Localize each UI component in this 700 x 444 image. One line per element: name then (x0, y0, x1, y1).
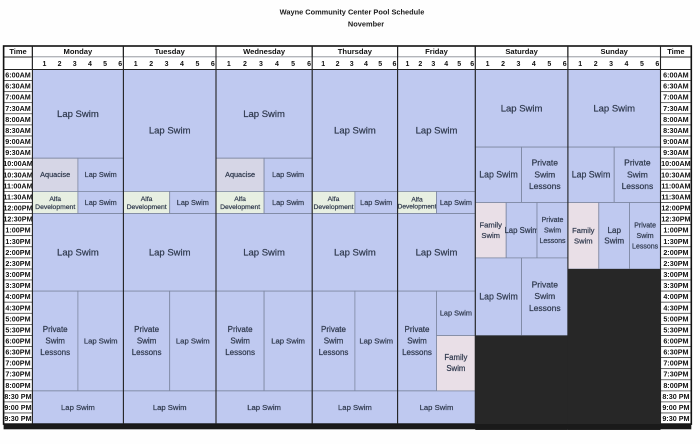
svg-text:9:30 PM: 9:30 PM (662, 414, 689, 423)
svg-text:Thursday: Thursday (338, 47, 373, 56)
svg-text:1: 1 (42, 61, 46, 68)
svg-text:5: 5 (291, 61, 295, 68)
svg-text:4:00PM: 4:00PM (663, 292, 688, 301)
svg-text:3:00PM: 3:00PM (5, 270, 30, 279)
svg-text:Wayne Community Center Pool Sc: Wayne Community Center Pool Schedule (280, 7, 425, 16)
svg-text:2:30PM: 2:30PM (663, 259, 688, 268)
svg-text:Lap Swim: Lap Swim (572, 170, 611, 180)
svg-text:1: 1 (227, 61, 231, 68)
svg-text:2:00PM: 2:00PM (663, 248, 688, 257)
svg-text:Lap Swim: Lap Swim (504, 226, 538, 235)
svg-text:6: 6 (118, 61, 122, 68)
svg-text:9:30AM: 9:30AM (663, 148, 689, 157)
svg-text:November: November (348, 19, 384, 28)
svg-text:Friday: Friday (425, 47, 449, 56)
svg-text:Lap Swim: Lap Swim (177, 198, 209, 207)
svg-text:3: 3 (259, 61, 263, 68)
svg-text:11:00AM: 11:00AM (3, 181, 32, 190)
svg-text:4:30PM: 4:30PM (5, 303, 30, 312)
svg-text:1: 1 (578, 61, 582, 68)
svg-text:4: 4 (180, 61, 184, 68)
svg-text:Lap Swim: Lap Swim (593, 103, 635, 114)
svg-text:4: 4 (88, 61, 92, 68)
svg-text:Lap Swim: Lap Swim (334, 125, 376, 136)
svg-text:Lap Swim: Lap Swim (360, 198, 392, 207)
svg-text:5: 5 (103, 61, 107, 68)
svg-text:12:30PM: 12:30PM (3, 215, 32, 224)
svg-text:Monday: Monday (64, 47, 93, 56)
svg-text:2: 2 (149, 61, 153, 68)
svg-text:6:00PM: 6:00PM (5, 337, 30, 346)
svg-text:7:00PM: 7:00PM (663, 359, 688, 368)
svg-text:8:00AM: 8:00AM (5, 115, 31, 124)
svg-text:11:30AM: 11:30AM (661, 192, 690, 201)
svg-text:6:00AM: 6:00AM (5, 71, 31, 80)
svg-text:5:00PM: 5:00PM (663, 314, 688, 323)
svg-text:6: 6 (307, 61, 311, 68)
svg-text:Lap Swim: Lap Swim (85, 198, 117, 207)
svg-text:Lap Swim: Lap Swim (57, 247, 99, 258)
svg-text:5: 5 (195, 61, 199, 68)
svg-text:8:00AM: 8:00AM (663, 115, 689, 124)
svg-text:8:00PM: 8:00PM (663, 381, 688, 390)
svg-text:Lap Swim: Lap Swim (85, 170, 117, 179)
svg-text:2: 2 (243, 61, 247, 68)
svg-text:3: 3 (516, 61, 520, 68)
svg-text:1: 1 (405, 61, 409, 68)
svg-text:8:30AM: 8:30AM (663, 126, 689, 135)
svg-text:2: 2 (418, 61, 422, 68)
svg-text:4: 4 (444, 61, 448, 68)
svg-text:Lap Swim: Lap Swim (271, 337, 305, 346)
svg-text:6:30PM: 6:30PM (5, 348, 30, 357)
svg-text:4: 4 (624, 61, 628, 68)
svg-text:5: 5 (378, 61, 382, 68)
svg-text:1: 1 (134, 61, 138, 68)
svg-text:1:30PM: 1:30PM (5, 237, 30, 246)
svg-text:4:30PM: 4:30PM (663, 303, 688, 312)
svg-text:12:00PM: 12:00PM (661, 204, 690, 213)
svg-text:9:00AM: 9:00AM (663, 137, 689, 146)
svg-text:3:00PM: 3:00PM (663, 270, 688, 279)
svg-text:Time: Time (9, 47, 26, 56)
svg-text:4: 4 (532, 61, 536, 68)
svg-text:FamilySwim: FamilySwim (572, 226, 595, 246)
svg-text:9:00 PM: 9:00 PM (4, 403, 31, 412)
svg-text:4: 4 (364, 61, 368, 68)
svg-text:6:00AM: 6:00AM (663, 71, 689, 80)
svg-text:12:30PM: 12:30PM (661, 215, 690, 224)
svg-text:9:30 PM: 9:30 PM (4, 414, 31, 423)
svg-text:1: 1 (486, 61, 490, 68)
svg-text:10:00AM: 10:00AM (3, 159, 33, 168)
svg-text:7:00AM: 7:00AM (663, 93, 689, 102)
svg-text:9:00 PM: 9:00 PM (662, 403, 689, 412)
svg-text:6:00PM: 6:00PM (663, 337, 688, 346)
svg-text:7:30AM: 7:30AM (5, 104, 31, 113)
svg-text:Lap Swim: Lap Swim (440, 198, 472, 207)
svg-text:4: 4 (275, 61, 279, 68)
svg-text:1: 1 (321, 61, 325, 68)
svg-text:9:30AM: 9:30AM (5, 148, 31, 157)
svg-text:2:00PM: 2:00PM (5, 248, 30, 257)
svg-text:2: 2 (58, 61, 62, 68)
svg-text:2: 2 (336, 61, 340, 68)
svg-text:Lap Swim: Lap Swim (334, 247, 376, 258)
svg-text:Lap Swim: Lap Swim (359, 337, 393, 346)
svg-text:6:30AM: 6:30AM (663, 82, 689, 91)
svg-text:FamilySwim: FamilySwim (480, 220, 503, 240)
svg-text:Lap Swim: Lap Swim (243, 109, 285, 120)
svg-text:8:30AM: 8:30AM (5, 126, 31, 135)
svg-text:8:30 PM: 8:30 PM (662, 392, 689, 401)
svg-text:Lap Swim: Lap Swim (420, 403, 454, 412)
svg-text:3: 3 (165, 61, 169, 68)
svg-text:3: 3 (609, 61, 613, 68)
svg-text:11:00AM: 11:00AM (661, 181, 690, 190)
svg-text:7:30AM: 7:30AM (663, 104, 689, 113)
svg-text:6:30PM: 6:30PM (663, 348, 688, 357)
svg-text:6: 6 (563, 61, 567, 68)
svg-text:10:00AM: 10:00AM (661, 159, 691, 168)
svg-text:7:30PM: 7:30PM (5, 370, 30, 379)
svg-text:11:30AM: 11:30AM (3, 192, 32, 201)
svg-text:Lap Swim: Lap Swim (176, 337, 210, 346)
svg-text:1:00PM: 1:00PM (663, 226, 688, 235)
svg-text:Lap Swim: Lap Swim (416, 125, 458, 136)
svg-text:3: 3 (431, 61, 435, 68)
svg-text:5: 5 (640, 61, 644, 68)
svg-text:Lap Swim: Lap Swim (479, 170, 518, 180)
svg-text:Lap Swim: Lap Swim (440, 309, 472, 318)
svg-text:1:30PM: 1:30PM (663, 237, 688, 246)
svg-text:2: 2 (501, 61, 505, 68)
svg-text:Lap Swim: Lap Swim (272, 170, 304, 179)
svg-text:Lap Swim: Lap Swim (247, 403, 281, 412)
svg-text:Saturday: Saturday (505, 47, 538, 56)
svg-text:7:00AM: 7:00AM (5, 93, 31, 102)
svg-text:2: 2 (594, 61, 598, 68)
svg-text:Lap Swim: Lap Swim (338, 403, 372, 412)
svg-text:Lap Swim: Lap Swim (57, 109, 99, 120)
svg-text:3: 3 (73, 61, 77, 68)
svg-text:6: 6 (470, 61, 474, 68)
svg-text:5: 5 (547, 61, 551, 68)
svg-text:Lap Swim: Lap Swim (479, 292, 518, 302)
svg-text:5:30PM: 5:30PM (5, 325, 30, 334)
svg-text:6: 6 (392, 61, 396, 68)
svg-text:6:30AM: 6:30AM (5, 82, 31, 91)
svg-text:Sunday: Sunday (600, 47, 628, 56)
svg-text:5:30PM: 5:30PM (663, 325, 688, 334)
svg-text:4:00PM: 4:00PM (5, 292, 30, 301)
svg-text:Lap Swim: Lap Swim (243, 247, 285, 258)
svg-text:Lap Swim: Lap Swim (501, 103, 543, 114)
svg-text:10:30AM: 10:30AM (3, 170, 33, 179)
svg-text:Lap Swim: Lap Swim (416, 247, 458, 258)
svg-text:2:30PM: 2:30PM (5, 259, 30, 268)
svg-text:5:00PM: 5:00PM (5, 314, 30, 323)
svg-text:Lap Swim: Lap Swim (149, 125, 191, 136)
svg-text:Lap Swim: Lap Swim (149, 247, 191, 258)
svg-text:7:30PM: 7:30PM (663, 370, 688, 379)
svg-text:Time: Time (667, 47, 684, 56)
svg-text:Lap Swim: Lap Swim (61, 403, 95, 412)
svg-text:Lap Swim: Lap Swim (153, 403, 187, 412)
svg-text:Lap Swim: Lap Swim (272, 198, 304, 207)
svg-text:6: 6 (655, 61, 659, 68)
svg-text:8:00PM: 8:00PM (5, 381, 30, 390)
svg-text:6: 6 (211, 61, 215, 68)
svg-text:1:00PM: 1:00PM (5, 226, 30, 235)
svg-text:3:30PM: 3:30PM (663, 281, 688, 290)
svg-text:Lap Swim: Lap Swim (84, 337, 118, 346)
svg-text:Aquacise: Aquacise (225, 170, 255, 179)
svg-text:5: 5 (457, 61, 461, 68)
svg-text:3: 3 (350, 61, 354, 68)
svg-text:Tuesday: Tuesday (155, 47, 186, 56)
svg-text:Aquacise: Aquacise (40, 170, 70, 179)
svg-text:Wednesday: Wednesday (243, 47, 286, 56)
svg-text:10:30AM: 10:30AM (661, 170, 691, 179)
svg-text:12:00PM: 12:00PM (3, 204, 32, 213)
svg-text:3:30PM: 3:30PM (5, 281, 30, 290)
svg-text:7:00PM: 7:00PM (5, 359, 30, 368)
svg-text:9:00AM: 9:00AM (5, 137, 31, 146)
svg-text:8:30 PM: 8:30 PM (4, 392, 31, 401)
